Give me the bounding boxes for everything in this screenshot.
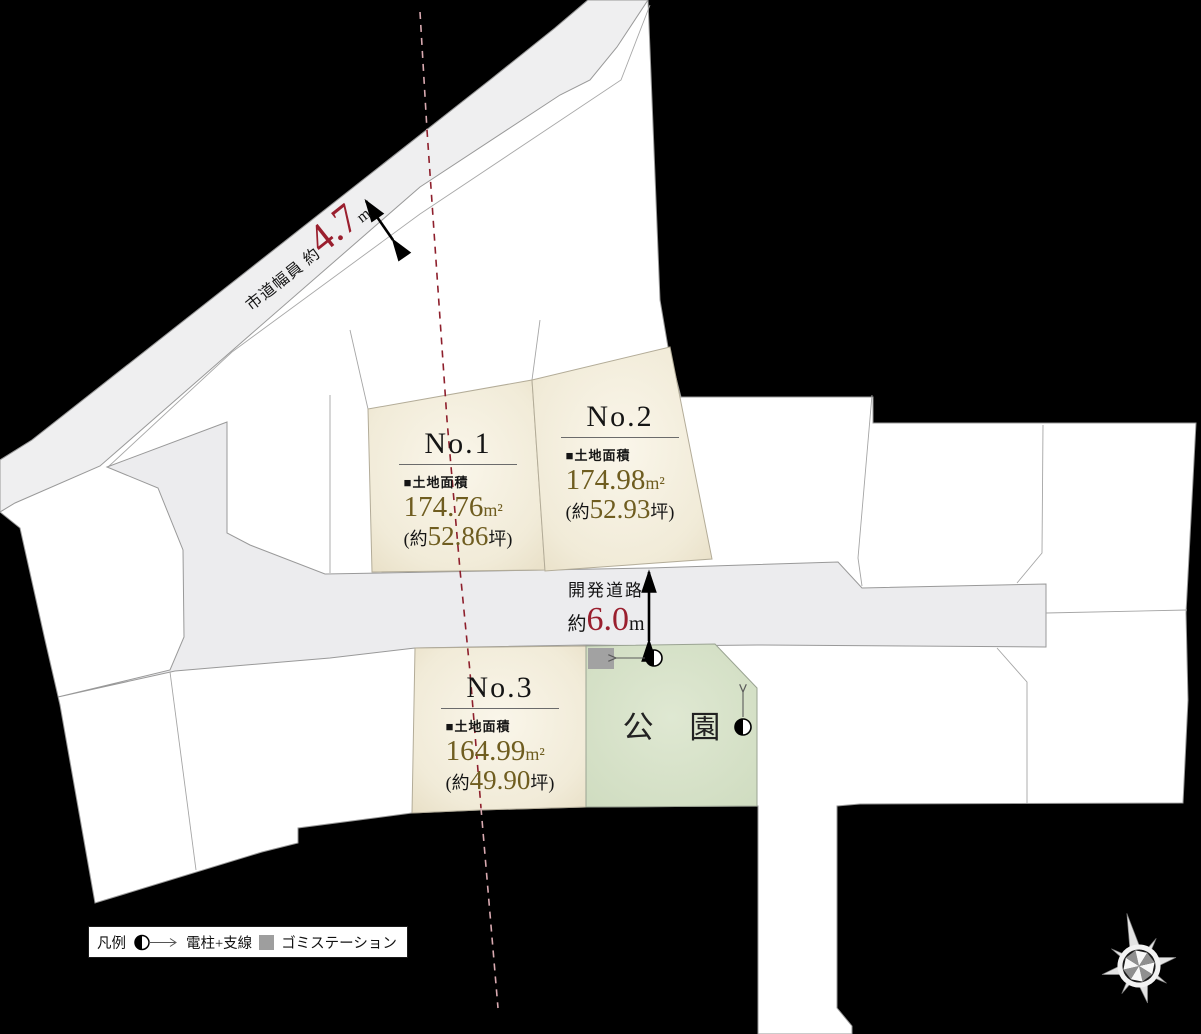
- dev-road-width-value: 6.0: [586, 601, 629, 638]
- legend-title: 凡例: [97, 932, 126, 953]
- lot-number: No.3: [414, 672, 586, 704]
- land-area-title: ■土地面積: [566, 445, 675, 464]
- utility-pole-icon: [646, 650, 662, 666]
- area-tsubo-value: 52.93: [590, 494, 651, 524]
- divider: [441, 708, 559, 709]
- land-area-title: ■土地面積: [446, 716, 555, 735]
- dev-road-name: 開発道路: [536, 576, 676, 601]
- lot-map: 市道幅員 約4.7m 開発道路 約6.0m No.1 ■土地面積 174.76m…: [0, 0, 1201, 1034]
- area-tsubo-value: 52.86: [428, 521, 489, 551]
- park-label: 公 園: [596, 702, 761, 747]
- land-area-title: ■土地面積: [404, 472, 513, 491]
- lot-number: No.2: [536, 401, 704, 433]
- dev-road-width-label: 開発道路 約6.0m: [536, 576, 676, 639]
- utility-pole-icon: [133, 934, 179, 951]
- garbage-station-icon: [259, 935, 274, 950]
- area-sqm-value: 164.99: [446, 735, 526, 767]
- legend-garbage-label: ゴミステーション: [281, 932, 397, 953]
- divider: [561, 437, 679, 438]
- lot-no2-label: No.2 ■土地面積 174.98m² (約52.93坪): [536, 401, 704, 525]
- area-sqm-value: 174.98: [566, 464, 646, 496]
- area-tsubo-value: 49.90: [470, 765, 531, 795]
- garbage-station-icon: [588, 648, 614, 669]
- lot-no1-label: No.1 ■土地面積 174.76m² (約52.86坪): [374, 428, 542, 552]
- lot-no3-label: No.3 ■土地面積 164.99m² (約49.90坪): [414, 672, 586, 796]
- lot-number: No.1: [374, 428, 542, 460]
- legend-pole-label: 電柱+支線: [186, 932, 252, 953]
- area-sqm-value: 174.76: [404, 491, 484, 523]
- legend: 凡例 電柱+支線 ゴミステーション: [88, 926, 408, 958]
- divider: [399, 464, 517, 465]
